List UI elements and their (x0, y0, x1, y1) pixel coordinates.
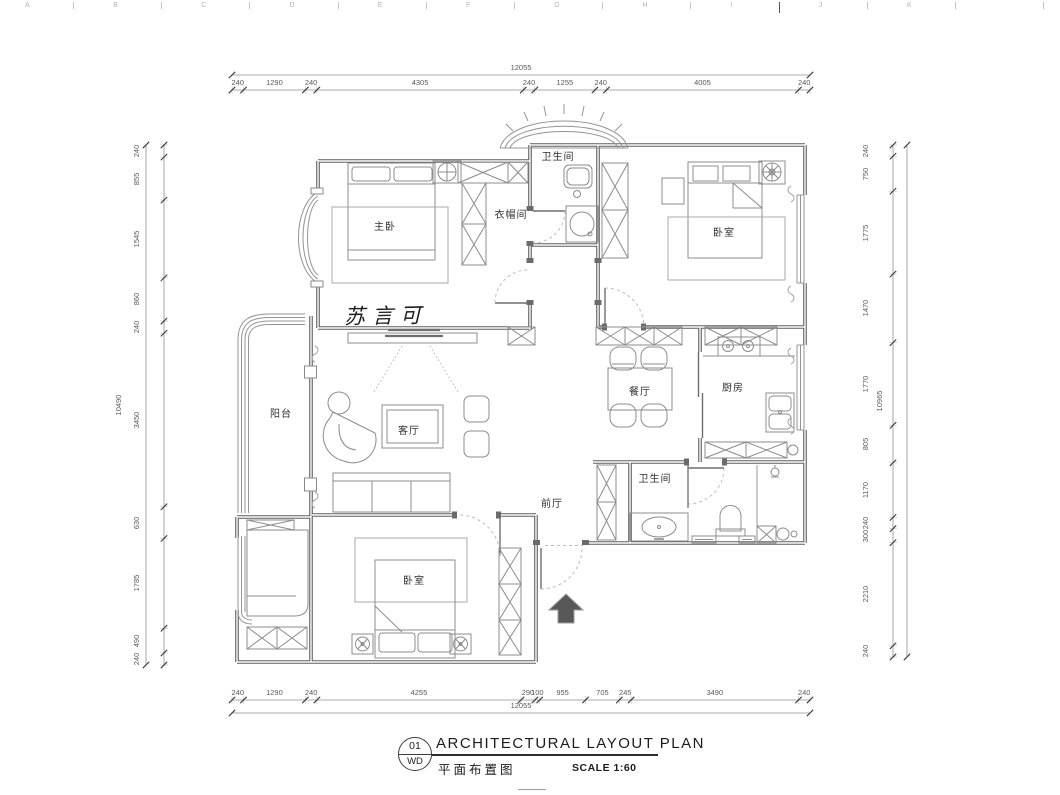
accent-chair-2 (464, 431, 489, 457)
kitchen-fixtures (703, 337, 798, 458)
bedroom-3-rug (355, 538, 467, 602)
dim-label: 240 (782, 689, 826, 697)
dimension-lines (143, 72, 910, 716)
dim-label: 1785 (133, 561, 141, 605)
dim-label: 1770 (862, 362, 870, 406)
kitchen-sliding-door (699, 352, 703, 438)
dim-label: 3490 (693, 689, 737, 697)
dim-label: 855 (133, 157, 141, 201)
dim-label: 630 (133, 501, 141, 545)
room-label-balcony: 阳台 (246, 405, 316, 420)
nightstand-lamp-right (450, 634, 471, 654)
room-label-cloakroom: 衣帽间 (476, 206, 546, 221)
tv-projection (374, 346, 458, 392)
tv-unit (348, 330, 477, 343)
room-label-kitchen: 厨房 (698, 379, 768, 394)
drawing-sheet: ABCDEFGHIJK (0, 0, 1060, 795)
side-table (328, 392, 350, 414)
dim-label: 240 (862, 629, 870, 673)
dim-label: 240 (289, 689, 333, 697)
dim-label: 300 (862, 514, 870, 558)
strip-window (238, 536, 252, 624)
title-block: 01 WD ARCHITECTURAL LAYOUT PLAN 平面布置图 SC… (396, 733, 658, 779)
room-label-living-room: 客厅 (374, 422, 444, 437)
dim-label: 955 (541, 689, 585, 697)
title-underline (432, 754, 658, 756)
dim-label: 12055 (499, 702, 543, 710)
dim-label: 805 (862, 422, 870, 466)
arch-window-top (500, 104, 628, 148)
bedroom-2-nightstand (662, 178, 684, 204)
bedroom-2-bed (688, 162, 762, 258)
dim-label: 3450 (133, 398, 141, 442)
dim-label: 1470 (862, 286, 870, 330)
drawing-title-cn: 平面布置图 (438, 759, 516, 778)
sheet-code: WD (399, 756, 431, 767)
room-label-master-bedroom: 主卧 (350, 218, 420, 233)
room-label-bathroom-top: 卫生间 (523, 148, 593, 163)
dim-label: 2210 (862, 572, 870, 616)
washing-machine (566, 206, 598, 242)
designer-watermark: 苏言可 (344, 299, 429, 330)
dim-label: 240 (782, 79, 826, 87)
shower-head (771, 465, 779, 477)
dim-label: 240 (579, 79, 623, 87)
armchair (323, 412, 376, 463)
sheet-number-bubble: 01 WD (398, 737, 432, 771)
bedroom-3-wardrobe (499, 548, 521, 655)
dim-label: 750 (862, 152, 870, 196)
bay-window-master (299, 192, 319, 283)
room-label-bedroom-3: 卧室 (379, 572, 449, 587)
accent-chair-1 (464, 396, 489, 422)
ceiling-light-bedroom-2 (759, 161, 785, 184)
daybed (247, 530, 308, 616)
doors (459, 211, 724, 589)
floor-plan-svg (0, 0, 1060, 795)
room-label-bathroom-2: 卫生间 (620, 470, 690, 485)
dim-label: 240 (133, 637, 141, 681)
bathroom-top-fixtures (564, 165, 598, 242)
drawing-title-en: ARCHITECTURAL LAYOUT PLAN (436, 735, 705, 752)
room-label-foyer: 前厅 (517, 495, 587, 510)
dining-cabinets (596, 327, 777, 345)
dim-label: 10490 (115, 383, 123, 427)
page-fold-mark (518, 789, 546, 790)
sheet-number: 01 (399, 740, 431, 752)
dim-label: 4005 (680, 79, 724, 87)
room-label-bedroom-2: 卧室 (689, 224, 759, 239)
cloakroom-wardrobe (462, 183, 486, 265)
dim-label: 4255 (397, 689, 441, 697)
sofa (333, 473, 450, 512)
room-label-dining-room: 餐厅 (605, 383, 675, 398)
nightstand-lamp-left (352, 634, 373, 654)
dim-label: 245 (603, 689, 647, 697)
door-jambs (452, 206, 727, 545)
shoe-cabinet (597, 465, 616, 540)
dim-label: 240 (289, 79, 333, 87)
dim-label: 4305 (398, 79, 442, 87)
dim-label: 12055 (499, 64, 543, 72)
kitchen-sink (766, 393, 794, 432)
ceiling-light-master (433, 161, 461, 183)
bedroom-2-wardrobe (602, 163, 628, 258)
dim-label: 240 (133, 305, 141, 349)
dim-label: 10965 (876, 379, 884, 423)
strip-cabinets (247, 520, 308, 649)
windows (238, 104, 804, 624)
master-bed (348, 163, 435, 260)
toilet (720, 506, 741, 532)
dim-label: 1775 (862, 211, 870, 255)
entry-arrow (549, 594, 583, 623)
dim-label: 1545 (133, 217, 141, 261)
drawing-scale: SCALE 1:60 (572, 762, 637, 774)
